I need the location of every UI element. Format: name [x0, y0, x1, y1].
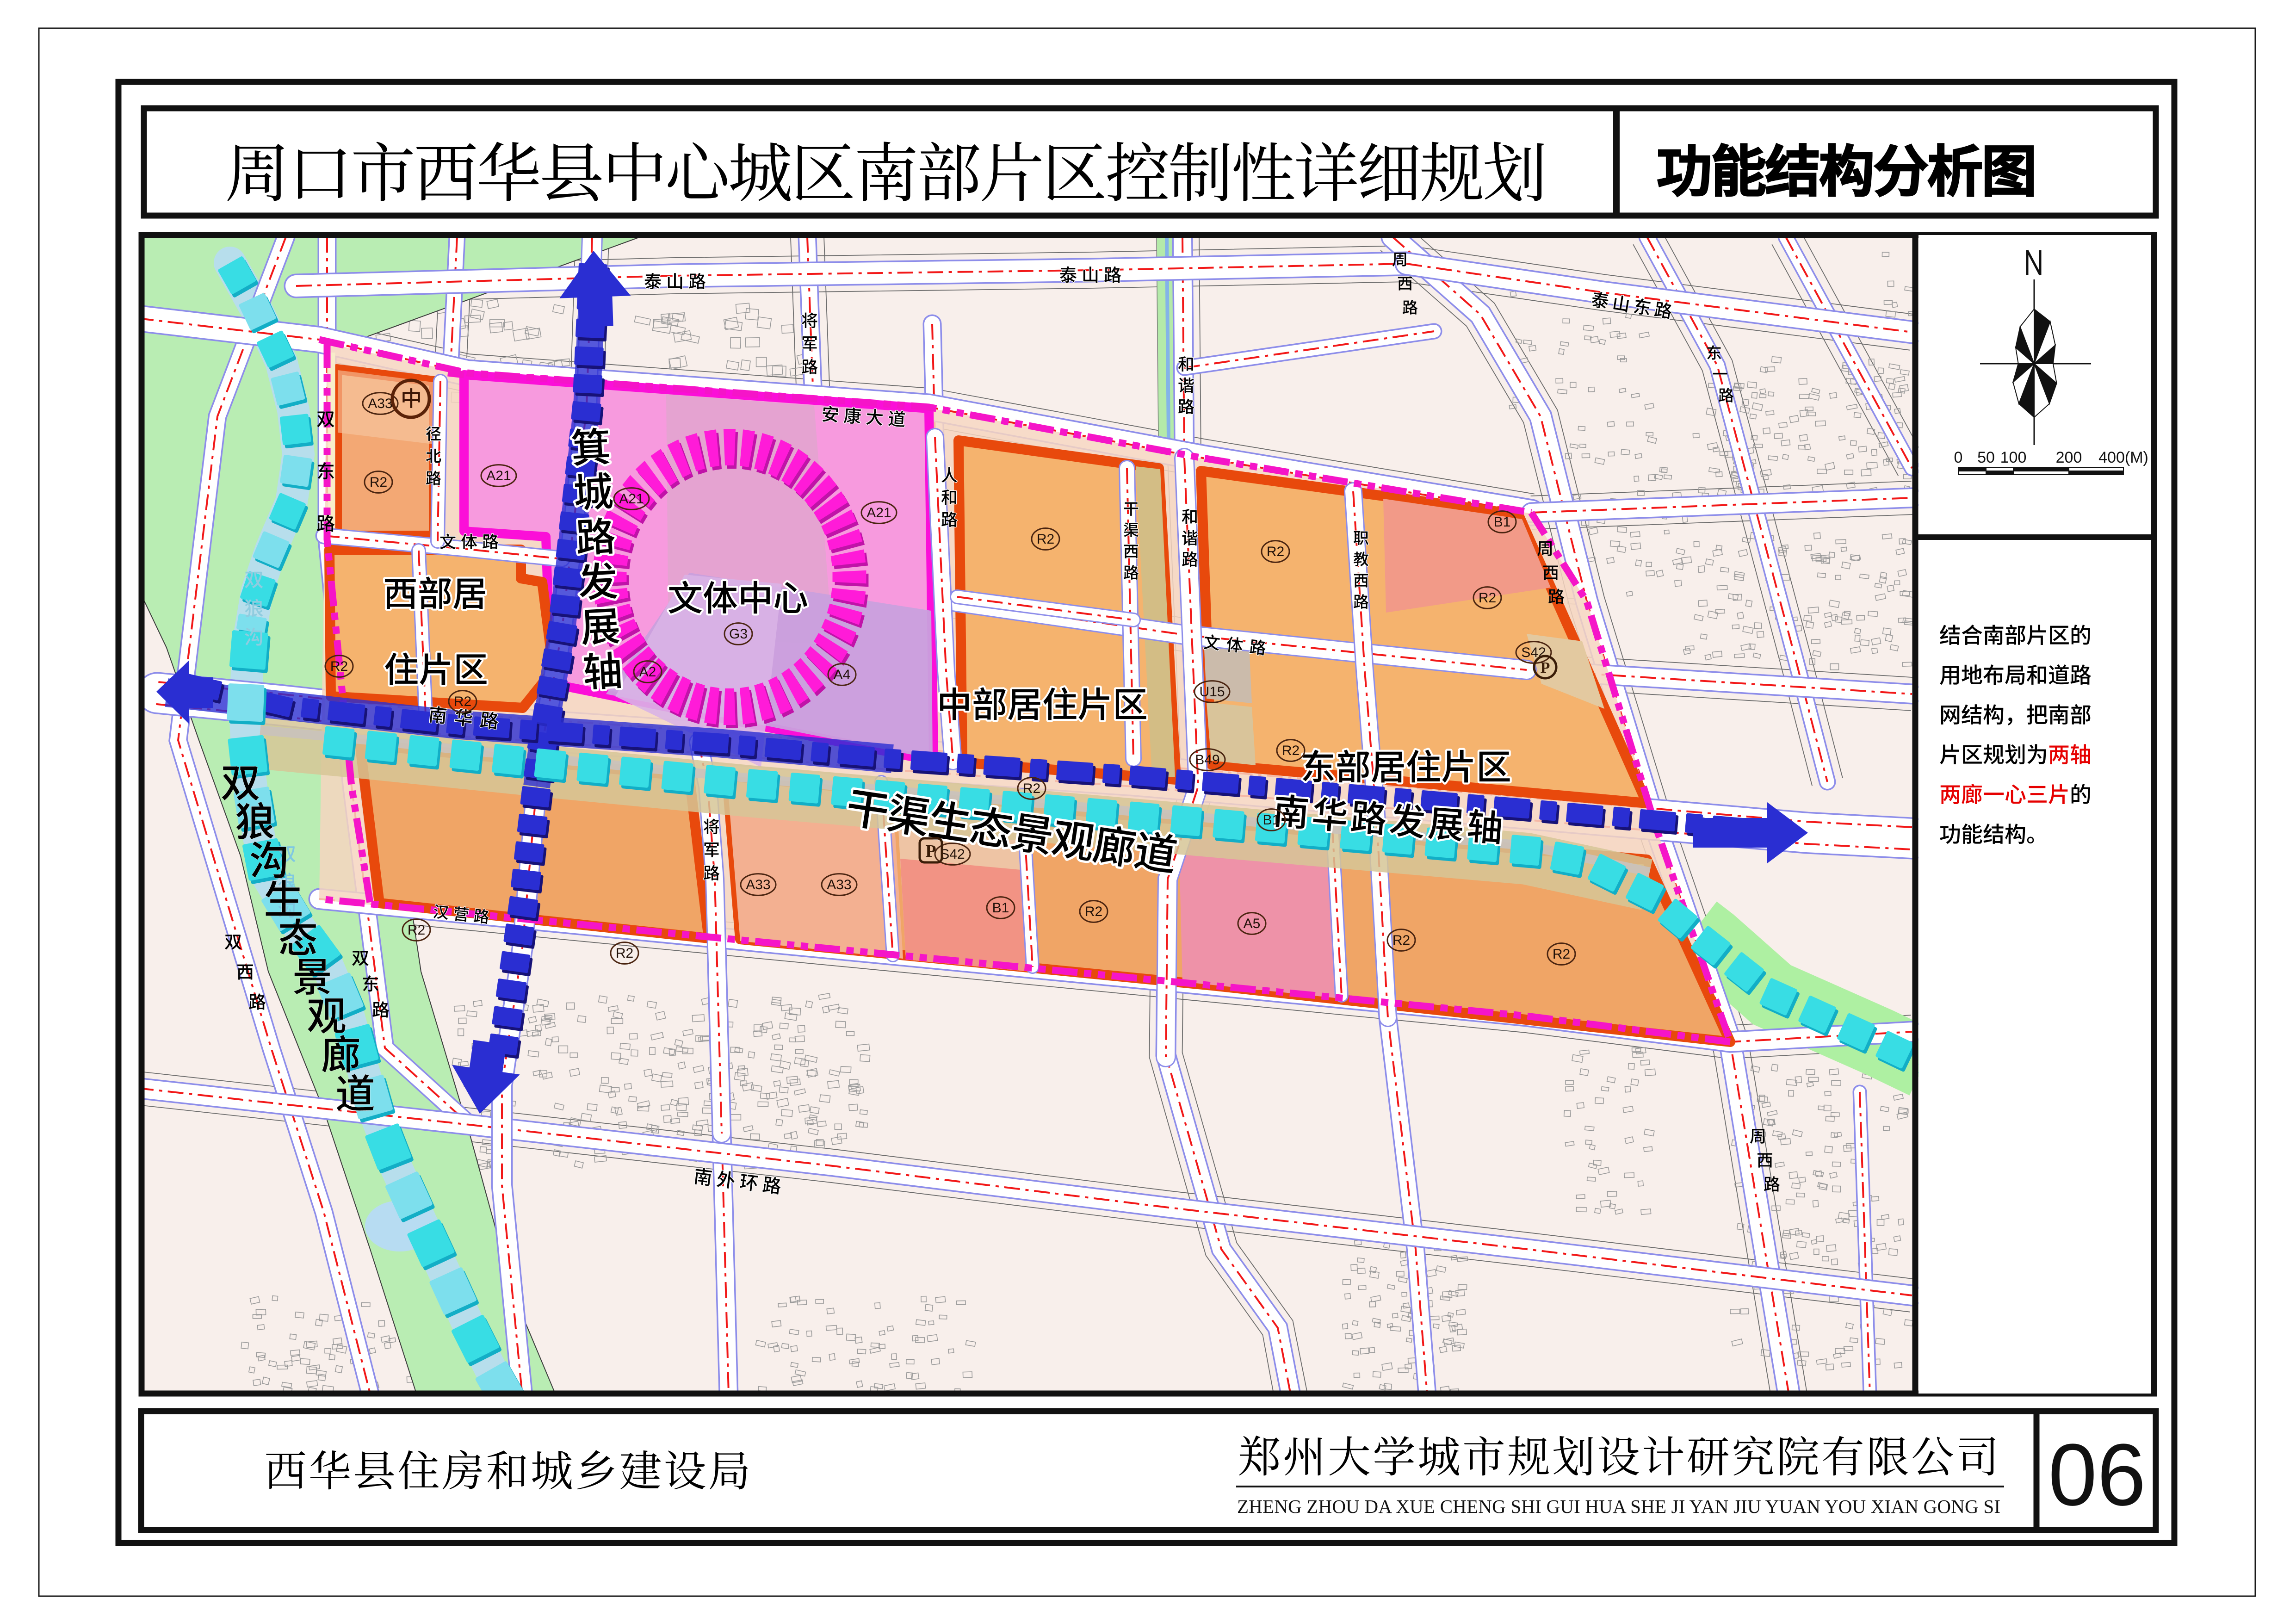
svg-text:R2: R2 — [1085, 904, 1102, 919]
svg-text:A21: A21 — [486, 468, 511, 483]
svg-text:R2: R2 — [330, 659, 348, 674]
svg-text:A21: A21 — [866, 505, 891, 520]
svg-text:B1: B1 — [1494, 514, 1511, 530]
svg-text:R2: R2 — [1023, 781, 1040, 796]
svg-text:R2: R2 — [1392, 933, 1410, 948]
svg-text:P: P — [1541, 659, 1550, 676]
svg-text:R2: R2 — [1267, 544, 1284, 559]
svg-text:A21: A21 — [619, 491, 644, 507]
svg-text:400(M): 400(M) — [2098, 449, 2148, 466]
svg-text:A33: A33 — [368, 396, 392, 411]
svg-text:R2: R2 — [616, 946, 633, 961]
svg-text:A33: A33 — [827, 877, 851, 892]
svg-text:R2: R2 — [1282, 743, 1300, 758]
svg-text:100: 100 — [2000, 449, 2027, 466]
svg-text:S42: S42 — [940, 847, 965, 862]
svg-text:200: 200 — [2056, 449, 2082, 466]
svg-text:B1: B1 — [992, 900, 1009, 916]
svg-text:R2: R2 — [454, 694, 471, 709]
svg-text:S42: S42 — [1521, 645, 1546, 660]
svg-text:B1: B1 — [1263, 812, 1280, 828]
svg-text:A4: A4 — [834, 667, 851, 682]
svg-text:B49: B49 — [1195, 752, 1219, 768]
svg-text:R2: R2 — [1037, 532, 1054, 547]
svg-text:U15: U15 — [1199, 684, 1225, 700]
svg-text:R2: R2 — [370, 475, 387, 490]
svg-text:ZHENG ZHOU DA XUE CHENG SHI GU: ZHENG ZHOU DA XUE CHENG SHI GUI HUA SHE … — [1237, 1496, 2000, 1517]
svg-text:A33: A33 — [746, 877, 770, 892]
svg-text:R2: R2 — [408, 923, 425, 938]
svg-text:P: P — [925, 842, 936, 861]
svg-text:A2: A2 — [639, 664, 656, 680]
svg-text:R2: R2 — [1479, 590, 1496, 606]
svg-text:A5: A5 — [1244, 916, 1261, 931]
svg-text:06: 06 — [2048, 1426, 2146, 1524]
svg-text:0: 0 — [1954, 449, 1963, 466]
svg-text:R2: R2 — [1553, 947, 1570, 962]
svg-text:50: 50 — [1977, 449, 1995, 466]
svg-text:G3: G3 — [729, 626, 748, 642]
